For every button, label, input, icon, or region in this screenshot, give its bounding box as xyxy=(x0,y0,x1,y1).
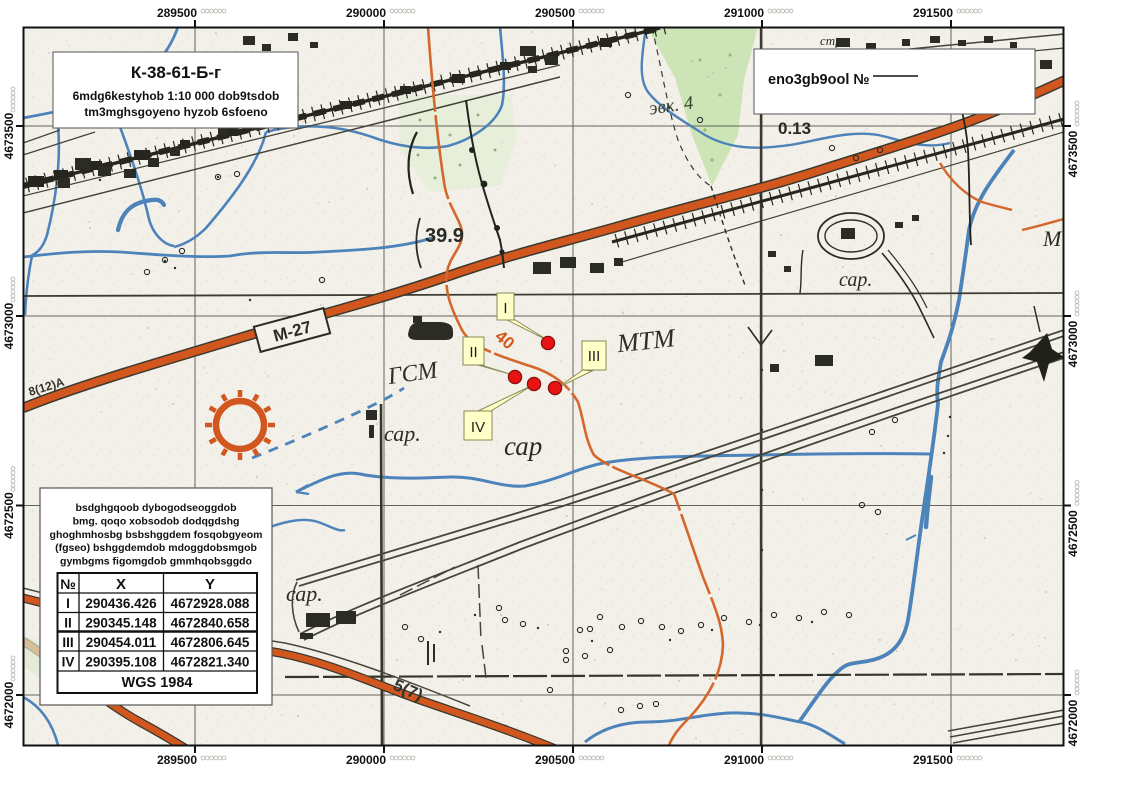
svg-text:II: II xyxy=(469,344,477,361)
svg-text:290500: 290500 xyxy=(535,753,575,767)
svg-text:289500: 289500 xyxy=(157,753,197,767)
svg-text:III: III xyxy=(62,635,73,650)
svg-text:4672000: 4672000 xyxy=(2,681,16,728)
svg-text:I: I xyxy=(66,596,70,611)
svg-text:290345.148: 290345.148 xyxy=(85,616,157,631)
svg-text:4672500: 4672500 xyxy=(2,492,16,539)
svg-text:eno3gb9ool №: eno3gb9ool № xyxy=(768,72,870,88)
svg-text:290000: 290000 xyxy=(346,6,386,20)
svg-text:4672500: 4672500 xyxy=(1066,510,1080,557)
svg-text:290500: 290500 xyxy=(535,6,575,20)
svg-text:X: X xyxy=(116,576,126,593)
svg-text:291000: 291000 xyxy=(724,6,764,20)
svg-text:tm3mghsgoyeno hyzob 6sfoeno: tm3mghsgoyeno hyzob 6sfoeno xyxy=(84,105,267,119)
svg-text:сар.: сар. xyxy=(384,421,421,446)
svg-text:289500: 289500 xyxy=(157,6,197,20)
svg-text:4672806.645: 4672806.645 xyxy=(171,635,250,650)
svg-text:стр.: стр. xyxy=(820,33,845,48)
svg-text:291000: 291000 xyxy=(724,753,764,767)
svg-text:сар.: сар. xyxy=(839,269,872,291)
svg-text:III: III xyxy=(588,348,601,365)
svg-text:I: I xyxy=(503,300,507,317)
svg-text:WGS 1984: WGS 1984 xyxy=(122,675,193,691)
svg-text:ghoghmhosbg bsbshggdem fosqobg: ghoghmhosbg bsbshggdem fosqobgyeom xyxy=(50,529,263,541)
svg-text:4672928.088: 4672928.088 xyxy=(171,596,250,611)
svg-text:39.9: 39.9 xyxy=(425,225,464,247)
svg-text:Y: Y xyxy=(205,576,215,593)
svg-text:291500: 291500 xyxy=(913,753,953,767)
svg-text:4672840.658: 4672840.658 xyxy=(171,616,250,631)
svg-text:IV: IV xyxy=(471,419,485,436)
svg-text:290436.426: 290436.426 xyxy=(85,596,157,611)
svg-text:сар.: сар. xyxy=(286,581,323,606)
svg-text:bmg. qoqo xobsodob dodqgdshg: bmg. qoqo xobsodob dodqgdshg xyxy=(73,515,240,527)
svg-text:0.13: 0.13 xyxy=(778,119,811,138)
svg-text:4672821.340: 4672821.340 xyxy=(171,655,250,670)
svg-text:4673500: 4673500 xyxy=(2,112,16,159)
svg-text:6mdg6kestyhob 1:10 000 dob9tsd: 6mdg6kestyhob 1:10 000 dob9tsdob xyxy=(73,89,280,103)
svg-text:М: М xyxy=(1042,226,1063,251)
svg-text:4672000: 4672000 xyxy=(1066,699,1080,746)
svg-text:сар: сар xyxy=(504,431,542,461)
svg-text:290000: 290000 xyxy=(346,753,386,767)
svg-text:№: № xyxy=(60,576,76,592)
svg-text:290454.011: 290454.011 xyxy=(86,635,157,650)
svg-text:4673500: 4673500 xyxy=(1066,130,1080,177)
svg-text:291500: 291500 xyxy=(913,6,953,20)
svg-text:gymbgms figomgdob gmmhqobsggdo: gymbgms figomgdob gmmhqobsggdo xyxy=(60,556,252,568)
svg-text:bsdghgqoob dybogodseoggdob: bsdghgqoob dybogodseoggdob xyxy=(76,502,237,514)
svg-text:IV: IV xyxy=(62,655,75,670)
svg-text:290395.108: 290395.108 xyxy=(85,655,157,670)
svg-text:(fgseo) bshggdemdob mdoggdobsm: (fgseo) bshggdemdob mdoggdobsmgob xyxy=(55,542,257,554)
svg-text:4673000: 4673000 xyxy=(1066,320,1080,367)
svg-text:II: II xyxy=(64,616,72,631)
svg-text:4673000: 4673000 xyxy=(2,302,16,349)
svg-text:К-38-61-Б-г: К-38-61-Б-г xyxy=(131,63,221,82)
